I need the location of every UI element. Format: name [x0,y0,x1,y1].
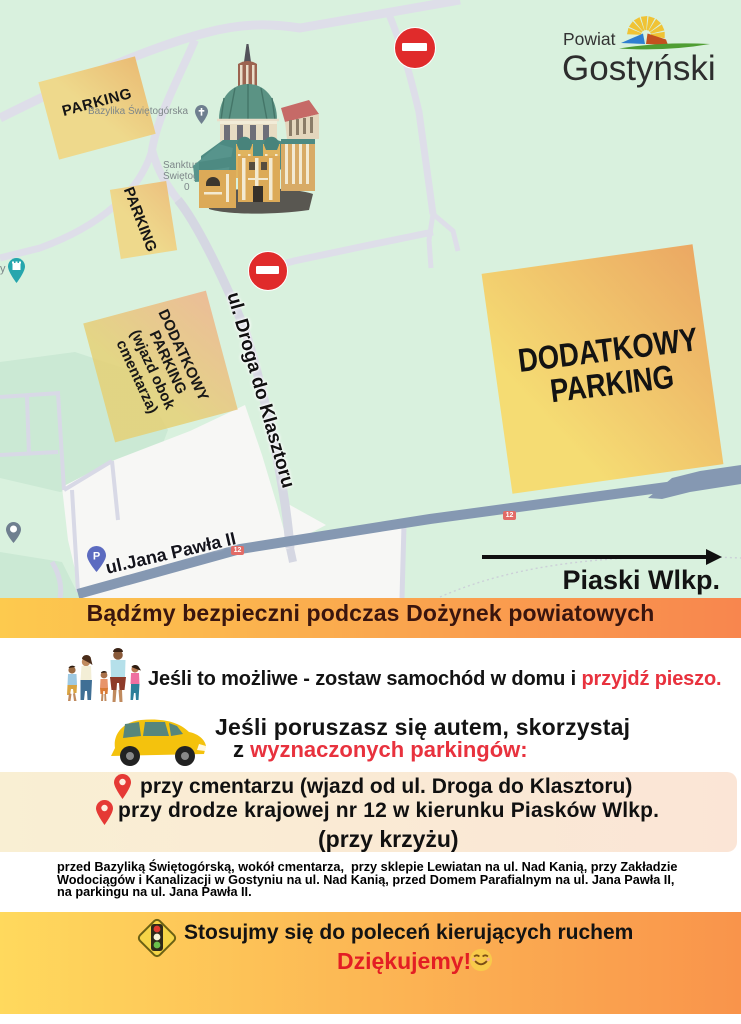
svg-text:P: P [93,551,100,563]
